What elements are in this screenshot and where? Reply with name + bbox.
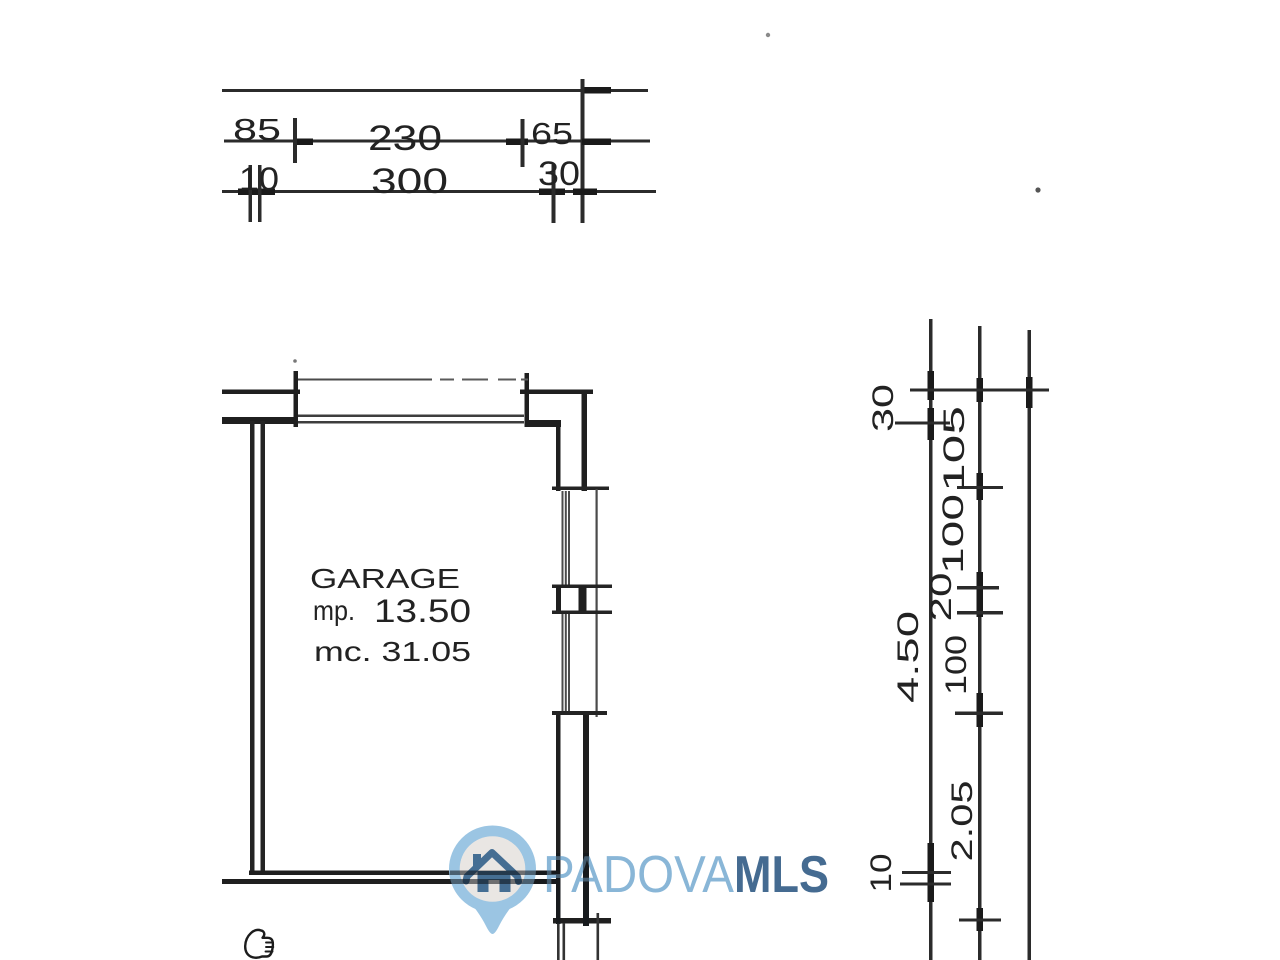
svg-text:85: 85 (233, 112, 281, 147)
svg-text:GARAGE: GARAGE (310, 563, 460, 594)
svg-text:MLS: MLS (734, 846, 829, 904)
svg-text:4.50: 4.50 (892, 611, 925, 703)
svg-text:230: 230 (368, 119, 442, 158)
svg-text:mc. 31.05: mc. 31.05 (314, 636, 471, 667)
svg-text:30: 30 (867, 384, 900, 432)
svg-text:100: 100 (940, 635, 973, 695)
svg-text:mp.: mp. (313, 595, 355, 626)
svg-text:300: 300 (371, 162, 448, 201)
svg-text:30: 30 (538, 155, 580, 193)
svg-text:65: 65 (531, 116, 573, 151)
svg-text:100: 100 (937, 494, 970, 574)
svg-text:20: 20 (925, 573, 958, 622)
svg-text:105: 105 (938, 406, 971, 492)
svg-text:10: 10 (865, 854, 898, 893)
svg-text:10: 10 (239, 161, 279, 197)
svg-text:2.05: 2.05 (946, 781, 979, 862)
svg-text:13.50: 13.50 (374, 593, 471, 629)
svg-text:PADOVA: PADOVA (543, 846, 734, 904)
